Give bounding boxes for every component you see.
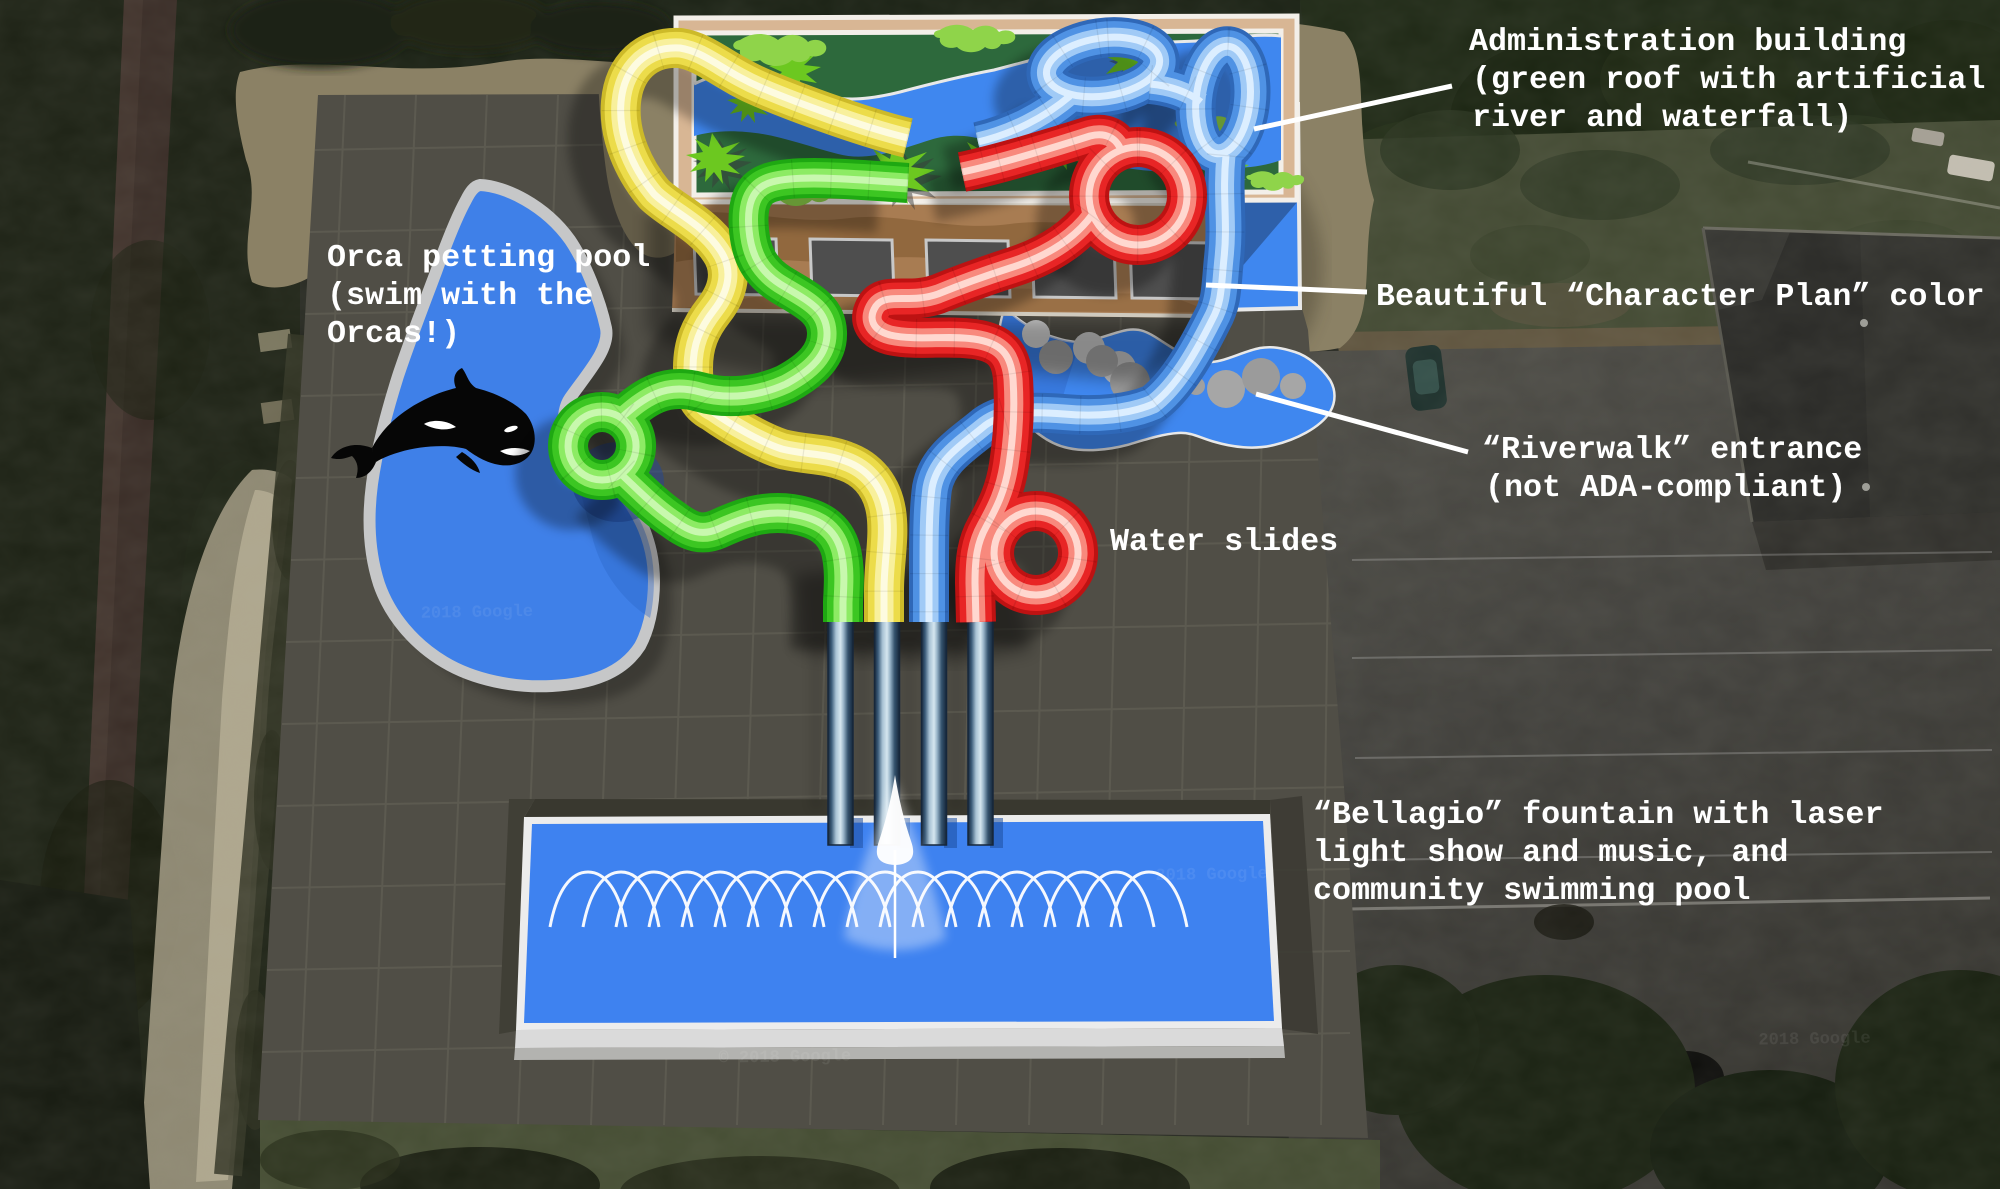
svg-text:“Bellagio” fountain with laser: “Bellagio” fountain with laser [1313, 797, 1883, 833]
svg-text:Water slides: Water slides [1110, 524, 1338, 560]
svg-text:(not ADA-compliant): (not ADA-compliant) [1485, 470, 1846, 506]
svg-text:Orca petting pool: Orca petting pool [327, 240, 650, 276]
svg-text:river and waterfall): river and waterfall) [1472, 100, 1852, 136]
svg-text:Beautiful “Character Plan” col: Beautiful “Character Plan” color [1376, 279, 1985, 315]
svg-text:“Riverwalk” entrance: “Riverwalk” entrance [1482, 432, 1862, 468]
svg-text:(green roof with artificial: (green roof with artificial [1472, 62, 1985, 98]
svg-text:2018 Google: 2018 Google [1155, 865, 1268, 886]
svg-text:Orcas!): Orcas!) [327, 316, 460, 352]
svg-text:community swimming pool: community swimming pool [1313, 873, 1750, 909]
svg-text:2018 Google: 2018 Google [1758, 1030, 1871, 1051]
svg-text:Administration building: Administration building [1469, 24, 1906, 60]
svg-text:2018 Google: 2018 Google [421, 603, 534, 624]
svg-text:(swim with the: (swim with the [327, 278, 593, 314]
svg-text:light show and music, and: light show and music, and [1313, 835, 1788, 871]
svg-text:© 2018 Google: © 2018 Google [718, 1047, 851, 1068]
